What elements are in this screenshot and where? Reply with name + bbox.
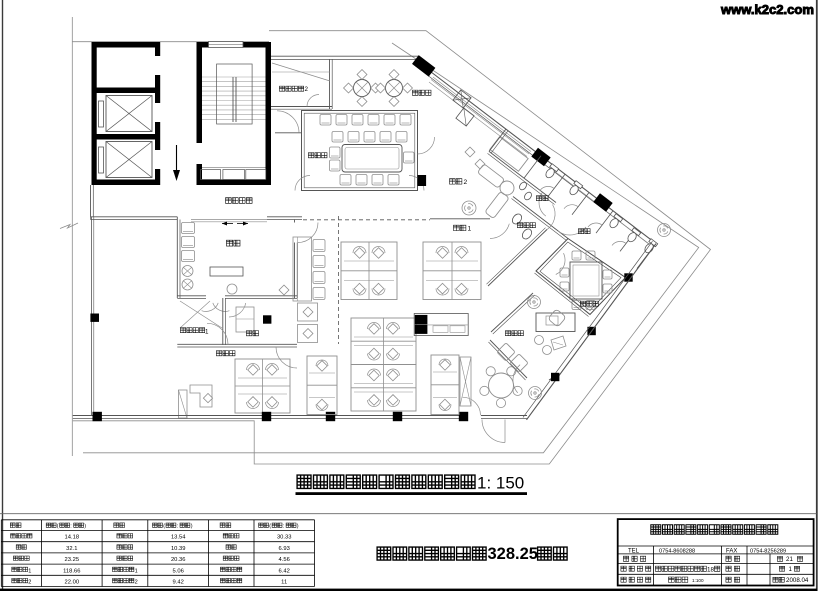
svg-text:): )	[297, 523, 299, 529]
svg-text:23.25: 23.25	[65, 557, 80, 563]
svg-text:13.54: 13.54	[171, 535, 186, 541]
svg-text:0754-8256289: 0754-8256289	[750, 548, 786, 554]
svg-text:1: 1	[468, 226, 472, 233]
svg-text:6.42: 6.42	[279, 568, 290, 574]
svg-text:30.33: 30.33	[277, 535, 292, 541]
svg-text:1: 1	[28, 568, 31, 574]
svg-text:): )	[191, 523, 193, 529]
svg-text:2: 2	[28, 580, 31, 586]
svg-text:21: 21	[786, 556, 793, 563]
svg-text:11: 11	[281, 580, 287, 586]
svg-text:2: 2	[135, 580, 138, 586]
svg-text:14.18: 14.18	[65, 535, 80, 541]
svg-text:20.36: 20.36	[171, 557, 186, 563]
svg-text:2: 2	[464, 179, 468, 186]
svg-text:32.1: 32.1	[66, 546, 77, 552]
svg-text::: :	[70, 523, 72, 529]
svg-text:1: 1	[205, 329, 209, 336]
svg-text:1:100: 1:100	[692, 578, 704, 583]
svg-text:1: 150: 1: 150	[477, 474, 524, 493]
svg-text:1: 1	[135, 568, 138, 574]
svg-text:2008.04: 2008.04	[786, 577, 809, 584]
svg-text:): )	[84, 523, 86, 529]
svg-text:10.39: 10.39	[171, 546, 186, 552]
svg-text:FAX: FAX	[726, 548, 737, 554]
svg-text:9.42: 9.42	[173, 580, 184, 586]
svg-text:22.00: 22.00	[65, 580, 80, 586]
svg-text:(: (	[269, 523, 271, 529]
svg-text:(: (	[57, 523, 59, 529]
svg-text:0754-8608288: 0754-8608288	[659, 548, 695, 554]
svg-text:4.56: 4.56	[279, 557, 290, 563]
svg-text:118.66: 118.66	[63, 568, 80, 574]
svg-text:www.k2c2.com: www.k2c2.com	[720, 2, 814, 17]
svg-text:5.06: 5.06	[173, 568, 184, 574]
svg-text:1: 1	[789, 566, 793, 573]
svg-text:6.93: 6.93	[279, 546, 290, 552]
svg-text::: :	[283, 523, 285, 529]
svg-text:328.25: 328.25	[488, 545, 538, 563]
svg-text:2: 2	[305, 86, 309, 93]
svg-text::: :	[177, 523, 179, 529]
svg-text:(: (	[163, 523, 165, 529]
svg-text:18: 18	[707, 566, 715, 573]
svg-text:TEL: TEL	[628, 548, 640, 554]
